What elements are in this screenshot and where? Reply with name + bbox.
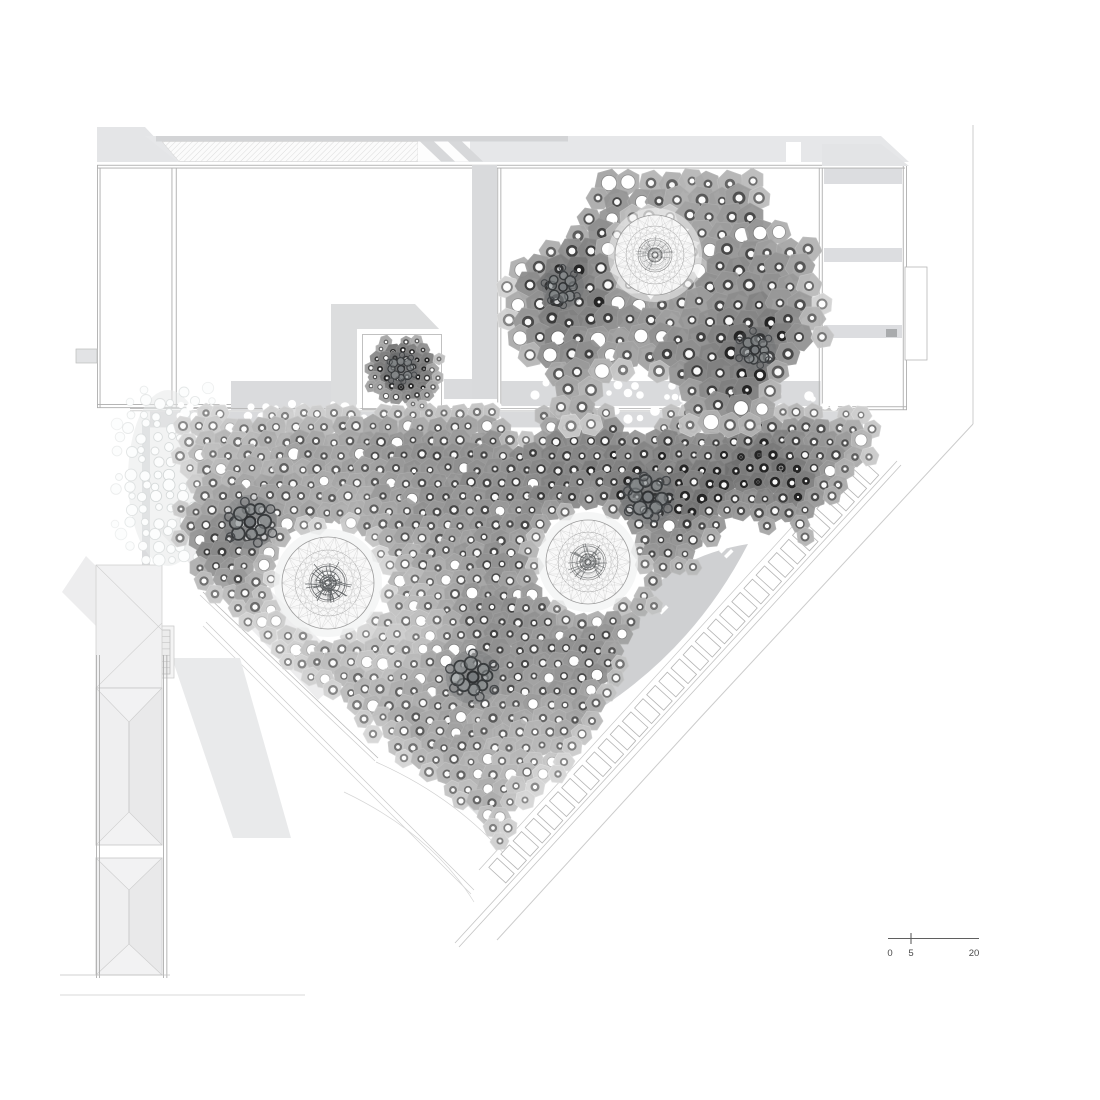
svg-text:20: 20 (969, 948, 980, 959)
svg-text:5: 5 (908, 948, 913, 959)
svg-text:0: 0 (887, 948, 892, 959)
